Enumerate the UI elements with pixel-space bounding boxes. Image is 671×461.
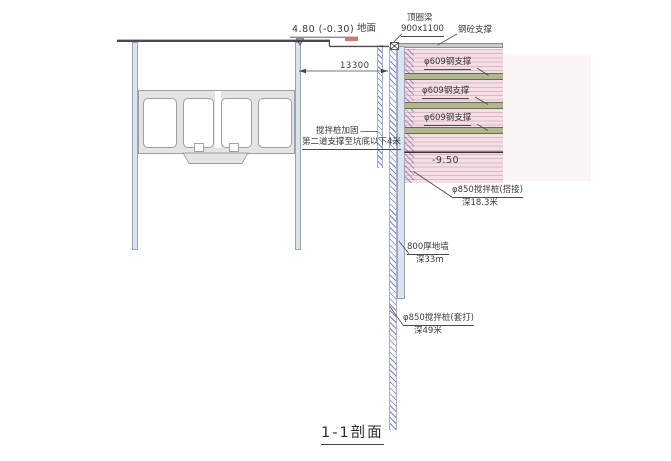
elevation-label: 4.80 (-0.30)	[292, 24, 354, 35]
level-mark	[345, 38, 358, 41]
center-joint-strip	[215, 91, 222, 148]
sleeve-pile-label: φ850搅拌桩(套打) 深49米	[403, 313, 474, 337]
sump-notch-right	[229, 143, 239, 152]
reinforcement-zone-faint	[503, 55, 591, 181]
steel-support-bar-1	[405, 73, 504, 80]
ring-beam-section-marker	[390, 42, 399, 51]
steel-support-bar-3	[405, 127, 504, 135]
diaphragm-wall-column	[397, 46, 406, 299]
right-station-wall	[295, 42, 301, 250]
lap-pile-label: φ850搅拌桩(搭接) 深18.3米	[452, 185, 523, 209]
reinforcement-note: 搅拌桩加固 第二道支撑至坑底以下4米	[302, 126, 401, 150]
steel-support-bar-2	[405, 102, 504, 109]
diaphragm-wall-label: 800厚地墙 深33m	[407, 242, 449, 266]
tunnel-cell-4	[258, 98, 292, 148]
lap-pile-edge-hatch	[405, 49, 415, 183]
tunnel-cell-3	[221, 98, 252, 148]
steel-support-label-3: φ609钢支撑	[424, 113, 471, 126]
ground-surface-label: 地面	[357, 23, 376, 34]
pit-bottom-level-label: -9.50	[432, 155, 459, 166]
station-box-structure	[138, 90, 296, 154]
tunnel-cell-2	[183, 98, 214, 148]
ring-beam-label: 顶圈梁 900x1100	[401, 13, 444, 37]
section-drawing: 4.80 (-0.30) 地面 顶圈梁 900x1100 钢砼支撑 13300 …	[0, 0, 671, 461]
base-slab-haunch	[183, 153, 248, 164]
steel-support-label-1: φ609钢支撑	[424, 57, 471, 70]
span-dimension-label: 13300	[340, 61, 370, 72]
concrete-support-label: 钢砼支撑	[458, 25, 492, 36]
steel-support-label-2: φ609钢支撑	[422, 86, 469, 99]
sump-notch-left	[194, 143, 204, 152]
section-title: 1-1剖面	[321, 428, 384, 441]
tunnel-cell-1	[143, 98, 177, 148]
concrete-support-beam	[398, 43, 503, 49]
